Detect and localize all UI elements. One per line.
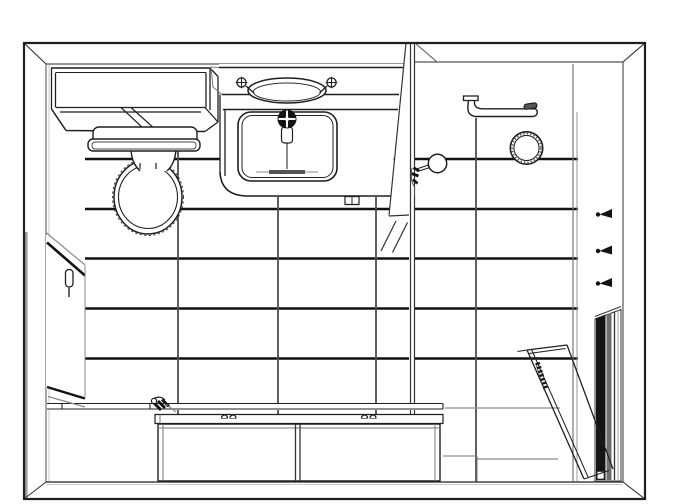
toilet-bowl-outer	[114, 160, 182, 234]
robe-hook-3	[596, 278, 612, 287]
door-handle	[66, 270, 74, 288]
vessel-sink-oval	[248, 78, 326, 103]
faucet-stem	[282, 127, 293, 143]
tile-grout-light-lines	[445, 408, 560, 459]
vanity	[211, 64, 404, 205]
towel-bar-flange	[464, 96, 479, 101]
towel-ring	[510, 132, 542, 164]
robe-hook-2-tip	[596, 249, 600, 253]
wall-cabinet-body	[51, 65, 218, 133]
robe-hook-3-tip	[596, 281, 600, 285]
towel-bar-post	[468, 101, 482, 117]
robe-hook-2	[596, 246, 612, 255]
towel-bar-rail	[475, 109, 537, 117]
bathroom-line-drawing	[0, 0, 676, 504]
floor-step-lines	[443, 456, 477, 482]
shower-mixer	[411, 154, 446, 196]
robe-hook-1	[596, 209, 612, 218]
robe-hook-3-body	[600, 278, 613, 287]
tub-rail	[155, 415, 443, 424]
mixer-knob	[428, 154, 446, 172]
wall-cabinet	[51, 65, 218, 134]
robe-hook-1-body	[600, 209, 613, 218]
cad-canvas	[0, 0, 676, 504]
track-dark-panel	[596, 315, 606, 480]
drain-bar	[269, 170, 305, 174]
robe-hook-1-tip	[596, 212, 600, 216]
toilet	[88, 127, 200, 236]
robe-hooks	[596, 209, 612, 287]
entry-door	[46, 233, 85, 408]
bathtub	[47, 397, 443, 481]
tub-panels	[158, 424, 440, 481]
robe-hook-2-body	[600, 246, 613, 255]
towel-ring-outer	[510, 132, 542, 164]
faucet-knob-center	[285, 117, 289, 121]
partition-ceiling-diagonal	[415, 43, 437, 62]
tub-spout-knob	[151, 398, 156, 403]
towel-bar	[464, 96, 538, 117]
